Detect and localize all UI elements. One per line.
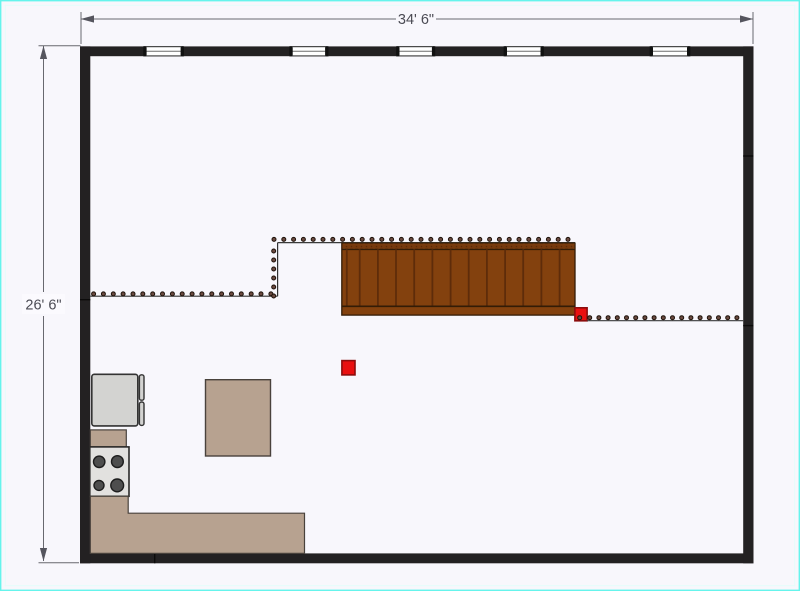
svg-text:26' 6": 26' 6" (25, 298, 61, 314)
svg-text:34' 6": 34' 6" (398, 12, 434, 28)
